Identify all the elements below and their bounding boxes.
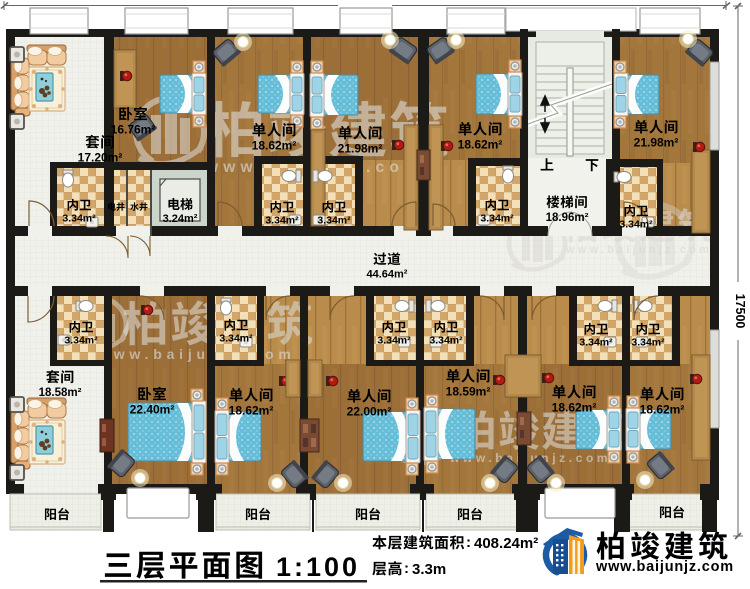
svg-text:3.34m²: 3.34m²	[579, 337, 613, 349]
svg-text:3.34m²: 3.34m²	[265, 215, 299, 227]
svg-text:22.40m²: 22.40m²	[130, 403, 175, 417]
svg-text:www.baijunjz.com: www.baijunjz.com	[595, 559, 734, 575]
svg-text:21.98m²: 21.98m²	[634, 136, 679, 150]
svg-text:44.64m²: 44.64m²	[367, 268, 408, 280]
svg-text:17500: 17500	[733, 294, 747, 329]
svg-text:408.24m²: 408.24m²	[474, 535, 538, 552]
svg-text:3.34m²: 3.34m²	[619, 219, 653, 231]
svg-text:18.96m²: 18.96m²	[546, 212, 589, 224]
svg-text:18.59m²: 18.59m²	[446, 385, 491, 399]
svg-text:3.34m²: 3.34m²	[317, 215, 351, 227]
svg-text:18.62m²: 18.62m²	[229, 404, 274, 418]
svg-text:3.34m²: 3.34m²	[429, 335, 463, 347]
svg-text:18.62m²: 18.62m²	[458, 138, 503, 152]
svg-text:18.58m²: 18.58m²	[39, 387, 82, 399]
svg-text:3.34m²: 3.34m²	[62, 213, 96, 225]
svg-text:18.62m²: 18.62m²	[552, 401, 597, 415]
svg-text:3.34m²: 3.34m²	[377, 335, 411, 347]
svg-text:3.3m: 3.3m	[412, 561, 446, 578]
svg-text:3.34m²: 3.34m²	[480, 213, 514, 225]
svg-text::: :	[404, 560, 409, 577]
svg-text:18.62m²: 18.62m²	[252, 139, 297, 153]
svg-text:21.98m²: 21.98m²	[338, 142, 383, 156]
svg-text:17.20m²: 17.20m²	[78, 151, 123, 165]
svg-text:3.34m²: 3.34m²	[64, 335, 98, 347]
svg-text:www.baijunjz.com: www.baijunjz.com	[97, 346, 296, 362]
svg-text:1:100: 1:100	[276, 552, 360, 582]
svg-text:3.34m²: 3.34m²	[631, 337, 665, 349]
svg-text::: :	[466, 534, 471, 551]
svg-text:3.24m²: 3.24m²	[163, 213, 198, 225]
svg-text:16.76m²: 16.76m²	[111, 123, 156, 137]
svg-text:18.62m²: 18.62m²	[640, 403, 685, 417]
svg-text:3.34m²: 3.34m²	[219, 333, 253, 345]
svg-text:22.00m²: 22.00m²	[347, 405, 392, 419]
